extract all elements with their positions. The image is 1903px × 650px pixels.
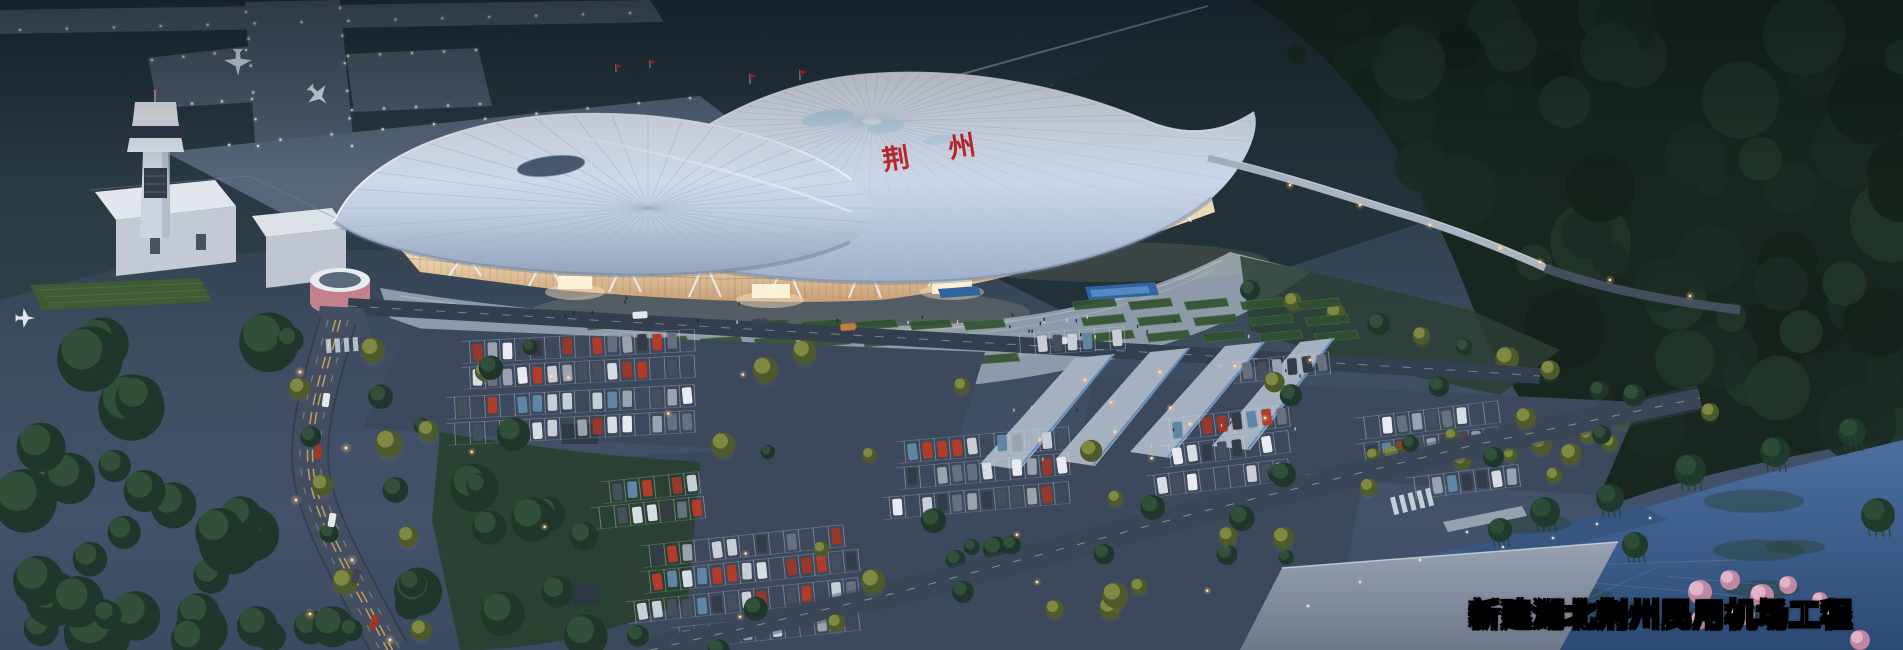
vignette (0, 0, 1903, 650)
project-caption: 新建湖北荆州民用机场工程 (1469, 590, 1853, 635)
airport-rendering: 荆 州 (0, 0, 1903, 650)
rendering-canvas: 荆 州 (0, 0, 1903, 650)
